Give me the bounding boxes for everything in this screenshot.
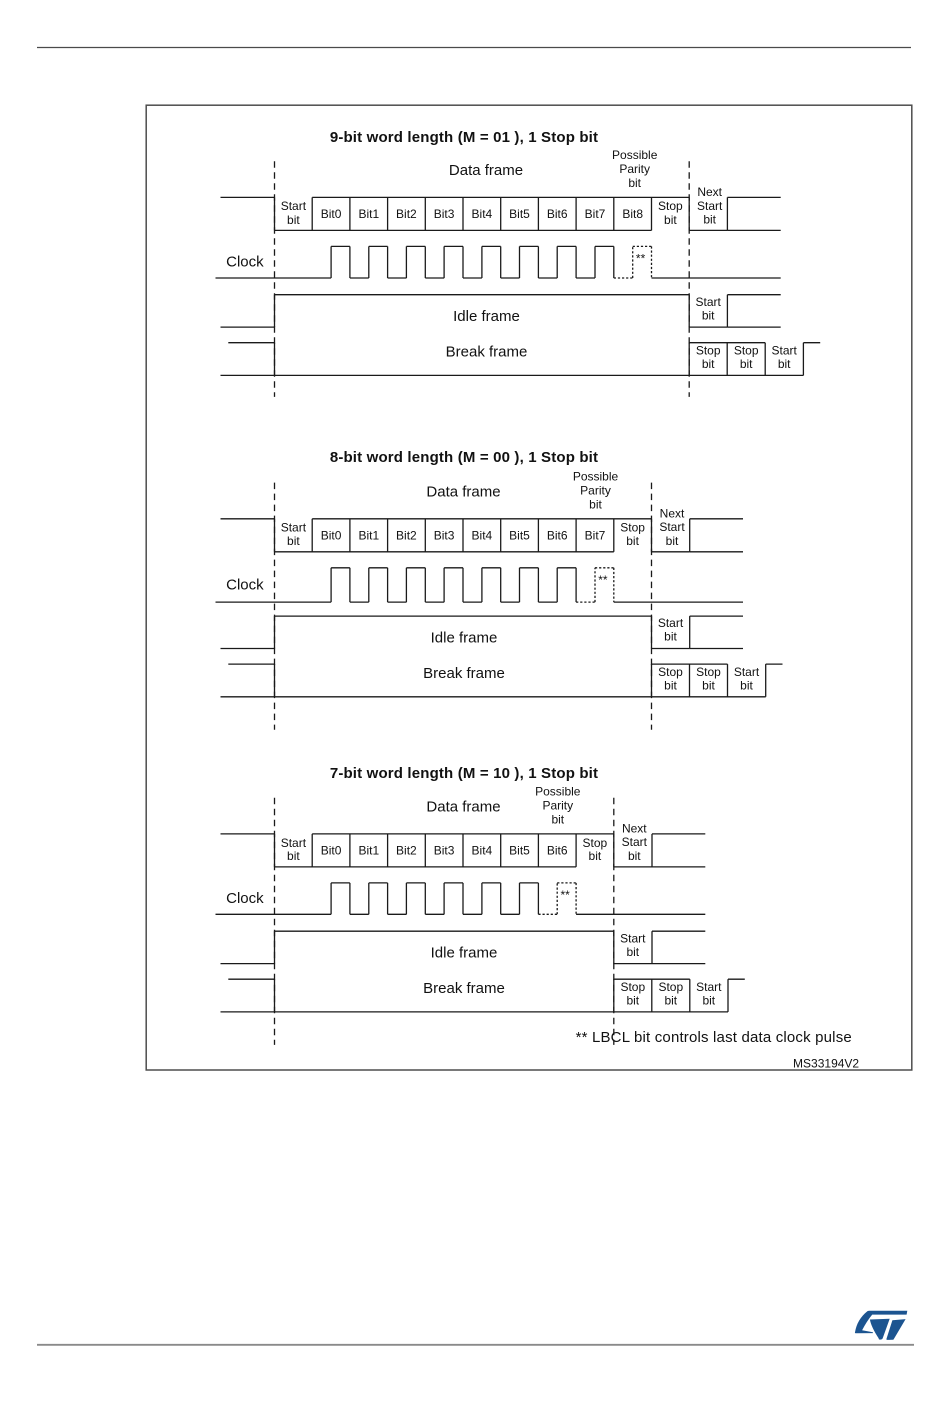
svg-text:Next: Next	[660, 506, 685, 520]
svg-text:Stop: Stop	[696, 665, 721, 679]
svg-text:Start: Start	[620, 931, 646, 945]
svg-text:Bit0: Bit0	[321, 528, 342, 542]
svg-text:Start: Start	[734, 665, 760, 679]
svg-text:** LBCL bit controls last data: ** LBCL bit controls last data clock pul…	[576, 1029, 852, 1046]
svg-text:bit: bit	[628, 176, 641, 190]
svg-text:Stop: Stop	[658, 980, 683, 994]
svg-text:Stop: Stop	[620, 521, 645, 535]
svg-text:Bit5: Bit5	[509, 843, 530, 857]
svg-text:Bit4: Bit4	[472, 843, 493, 857]
svg-text:Start: Start	[696, 295, 722, 309]
svg-text:Bit4: Bit4	[472, 207, 493, 221]
svg-text:Idle frame: Idle frame	[431, 630, 498, 647]
svg-text:Bit6: Bit6	[547, 843, 568, 857]
svg-text:bit: bit	[702, 678, 715, 692]
svg-text:Bit7: Bit7	[585, 528, 606, 542]
svg-text:Bit1: Bit1	[358, 207, 379, 221]
svg-text:bit: bit	[740, 678, 753, 692]
svg-text:Data frame: Data frame	[426, 483, 500, 500]
svg-text:Parity: Parity	[580, 484, 611, 498]
svg-text:Stop: Stop	[583, 836, 608, 850]
svg-text:Possible: Possible	[573, 470, 619, 484]
svg-text:Bit2: Bit2	[396, 843, 417, 857]
svg-text:bit: bit	[628, 849, 641, 863]
svg-text:Bit8: Bit8	[622, 207, 643, 221]
svg-text:Break frame: Break frame	[423, 980, 505, 997]
svg-text:bit: bit	[664, 213, 677, 227]
svg-text:Stop: Stop	[620, 980, 645, 994]
svg-text:**: **	[636, 252, 646, 266]
svg-text:Break frame: Break frame	[423, 665, 505, 682]
svg-text:Bit2: Bit2	[396, 207, 417, 221]
svg-text:bit: bit	[626, 534, 639, 548]
svg-text:Bit4: Bit4	[472, 528, 493, 542]
svg-text:bit: bit	[664, 630, 677, 644]
svg-text:Idle frame: Idle frame	[453, 308, 520, 325]
svg-text:**: **	[598, 573, 608, 587]
svg-text:Start: Start	[281, 521, 307, 535]
svg-text:**: **	[561, 888, 571, 902]
svg-text:Bit5: Bit5	[509, 207, 530, 221]
svg-text:bit: bit	[589, 498, 602, 512]
svg-text:Parity: Parity	[542, 799, 573, 813]
svg-text:bit: bit	[589, 849, 602, 863]
svg-text:7-bit word length (M = 10 ), 1: 7-bit word length (M = 10 ), 1 Stop bit	[330, 765, 598, 782]
svg-text:Possible: Possible	[612, 148, 658, 162]
svg-text:Start: Start	[281, 836, 307, 850]
svg-text:Clock: Clock	[226, 576, 264, 593]
svg-text:bit: bit	[287, 213, 300, 227]
svg-text:Start: Start	[697, 199, 723, 213]
svg-text:Bit1: Bit1	[358, 843, 379, 857]
svg-text:Start: Start	[696, 980, 722, 994]
svg-text:Stop: Stop	[658, 665, 683, 679]
svg-text:Stop: Stop	[734, 344, 759, 358]
svg-text:Data frame: Data frame	[426, 798, 500, 815]
svg-text:bit: bit	[551, 813, 564, 827]
svg-text:bit: bit	[664, 678, 677, 692]
svg-text:bit: bit	[626, 945, 639, 959]
svg-text:Bit3: Bit3	[434, 528, 455, 542]
svg-text:Start: Start	[622, 835, 648, 849]
svg-text:bit: bit	[626, 994, 639, 1008]
svg-text:Bit2: Bit2	[396, 528, 417, 542]
svg-text:Stop: Stop	[696, 344, 721, 358]
svg-text:MS33194V2: MS33194V2	[793, 1057, 859, 1071]
svg-text:Start: Start	[772, 344, 798, 358]
svg-text:bit: bit	[287, 534, 300, 548]
svg-text:Clock: Clock	[226, 254, 264, 271]
svg-text:Bit6: Bit6	[547, 528, 568, 542]
svg-text:bit: bit	[703, 213, 716, 227]
svg-text:bit: bit	[666, 534, 679, 548]
svg-text:Parity: Parity	[619, 162, 650, 176]
svg-text:bit: bit	[287, 849, 300, 863]
svg-text:Bit7: Bit7	[585, 207, 606, 221]
svg-text:Data frame: Data frame	[449, 162, 523, 179]
svg-text:Clock: Clock	[226, 890, 264, 907]
svg-text:Possible: Possible	[535, 785, 581, 799]
svg-text:Start: Start	[659, 520, 685, 534]
svg-text:Bit0: Bit0	[321, 207, 342, 221]
svg-text:Bit3: Bit3	[434, 207, 455, 221]
svg-text:Stop: Stop	[658, 199, 683, 213]
svg-text:Idle frame: Idle frame	[431, 945, 498, 962]
svg-text:Bit6: Bit6	[547, 207, 568, 221]
svg-text:Next: Next	[622, 822, 647, 836]
svg-text:Bit3: Bit3	[434, 843, 455, 857]
svg-text:9-bit word length (M = 01 ), 1: 9-bit word length (M = 01 ), 1 Stop bit	[330, 129, 598, 146]
svg-text:Bit5: Bit5	[509, 528, 530, 542]
svg-text:Bit0: Bit0	[321, 843, 342, 857]
svg-text:bit: bit	[702, 994, 715, 1008]
svg-text:Break frame: Break frame	[446, 344, 528, 361]
svg-text:Next: Next	[697, 185, 722, 199]
svg-text:Start: Start	[281, 199, 307, 213]
svg-text:bit: bit	[664, 994, 677, 1008]
svg-text:bit: bit	[702, 357, 715, 371]
svg-text:Bit1: Bit1	[358, 528, 379, 542]
svg-text:bit: bit	[778, 357, 791, 371]
svg-text:Start: Start	[658, 616, 684, 630]
svg-text:bit: bit	[740, 357, 753, 371]
svg-text:bit: bit	[702, 308, 715, 322]
svg-text:8-bit word length (M = 00 ), 1: 8-bit word length (M = 00 ), 1 Stop bit	[330, 449, 598, 466]
